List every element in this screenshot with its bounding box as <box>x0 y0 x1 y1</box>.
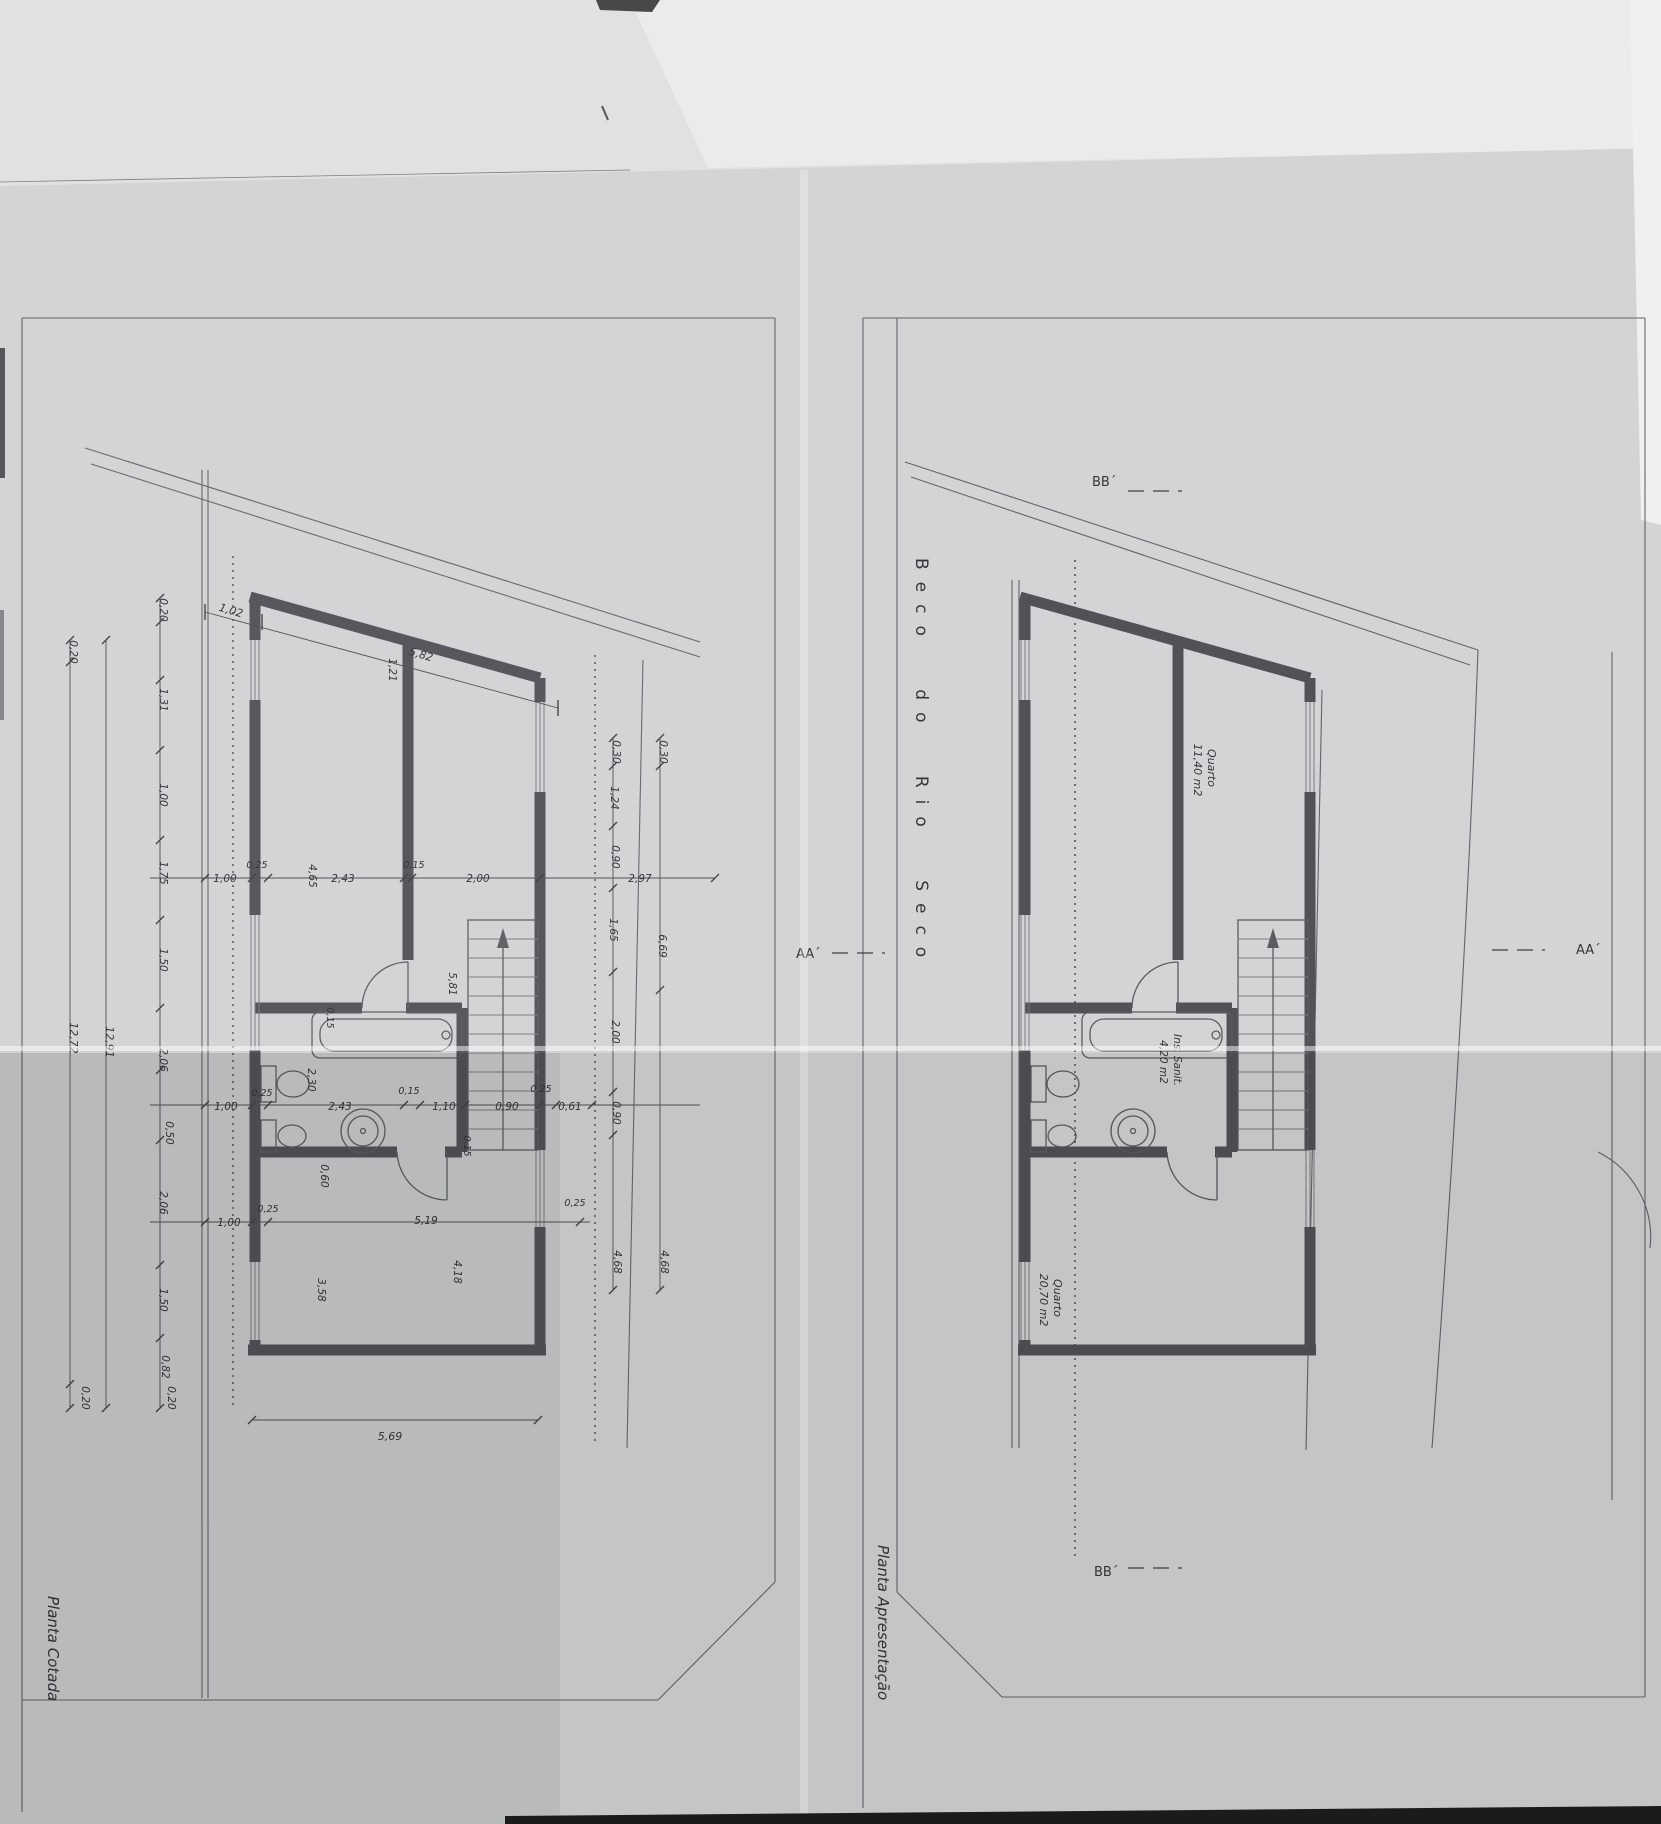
dimension-label: 0,15 <box>324 1007 335 1028</box>
lower-left-shadow <box>0 1053 560 1824</box>
left-edge-shadow-2 <box>0 610 4 720</box>
top-right-bright-area <box>630 0 1661 168</box>
dimension-label: 1,00 <box>157 783 169 807</box>
dimension-label: 1,31 <box>157 688 169 711</box>
dimension-label: 0,30 <box>610 740 622 764</box>
dimension-label: 0,20 <box>67 640 79 664</box>
street-name: Beco do Rio Seco <box>911 558 931 969</box>
dimension-label: 4,65 <box>306 864 318 888</box>
vertical-crease <box>800 170 808 1824</box>
dimension-label: 2,43 <box>331 873 354 885</box>
dimension-label: 1,24 <box>608 786 620 809</box>
dimension-label: 0,20 <box>157 598 169 622</box>
dimension-label: 1,00 <box>213 873 237 885</box>
dimension-label: 1,21 <box>386 658 398 681</box>
dimension-label: 1,75 <box>157 861 169 885</box>
section-marker-aa-right: AA´ <box>1576 943 1601 958</box>
fold-crease-highlight <box>0 1046 1661 1051</box>
room-name-label: Quarto <box>1205 749 1218 787</box>
dimension-label: 0,25 <box>246 860 267 871</box>
left-edge-shadow-1 <box>0 348 5 478</box>
dimension-label: 5,81 <box>446 972 458 995</box>
dimension-label: 2,00 <box>466 873 490 885</box>
dimension-label: 0,15 <box>403 860 424 871</box>
dark-mark-top-edge <box>596 0 660 12</box>
section-marker-aa-left: AA´ <box>796 947 821 962</box>
dimension-label: 0,90 <box>609 845 621 869</box>
dimension-label: 6,69 <box>656 934 668 958</box>
dimension-label: 2,97 <box>628 873 652 885</box>
dimension-label: 0,30 <box>657 740 669 764</box>
dimension-label: 2,00 <box>609 1020 621 1044</box>
floor-plan-drawing: Planta CotadaPlanta ApresentaçãoBeco do … <box>0 0 1661 1824</box>
dimension-label: 1,50 <box>157 948 169 972</box>
photographed-floor-plan-sheet: Planta CotadaPlanta ApresentaçãoBeco do … <box>0 0 1661 1824</box>
section-marker-bb-top: BB´ <box>1092 475 1116 490</box>
dimension-label: 1,65 <box>607 918 619 942</box>
room-area-label: 11,40 m2 <box>1191 744 1204 797</box>
